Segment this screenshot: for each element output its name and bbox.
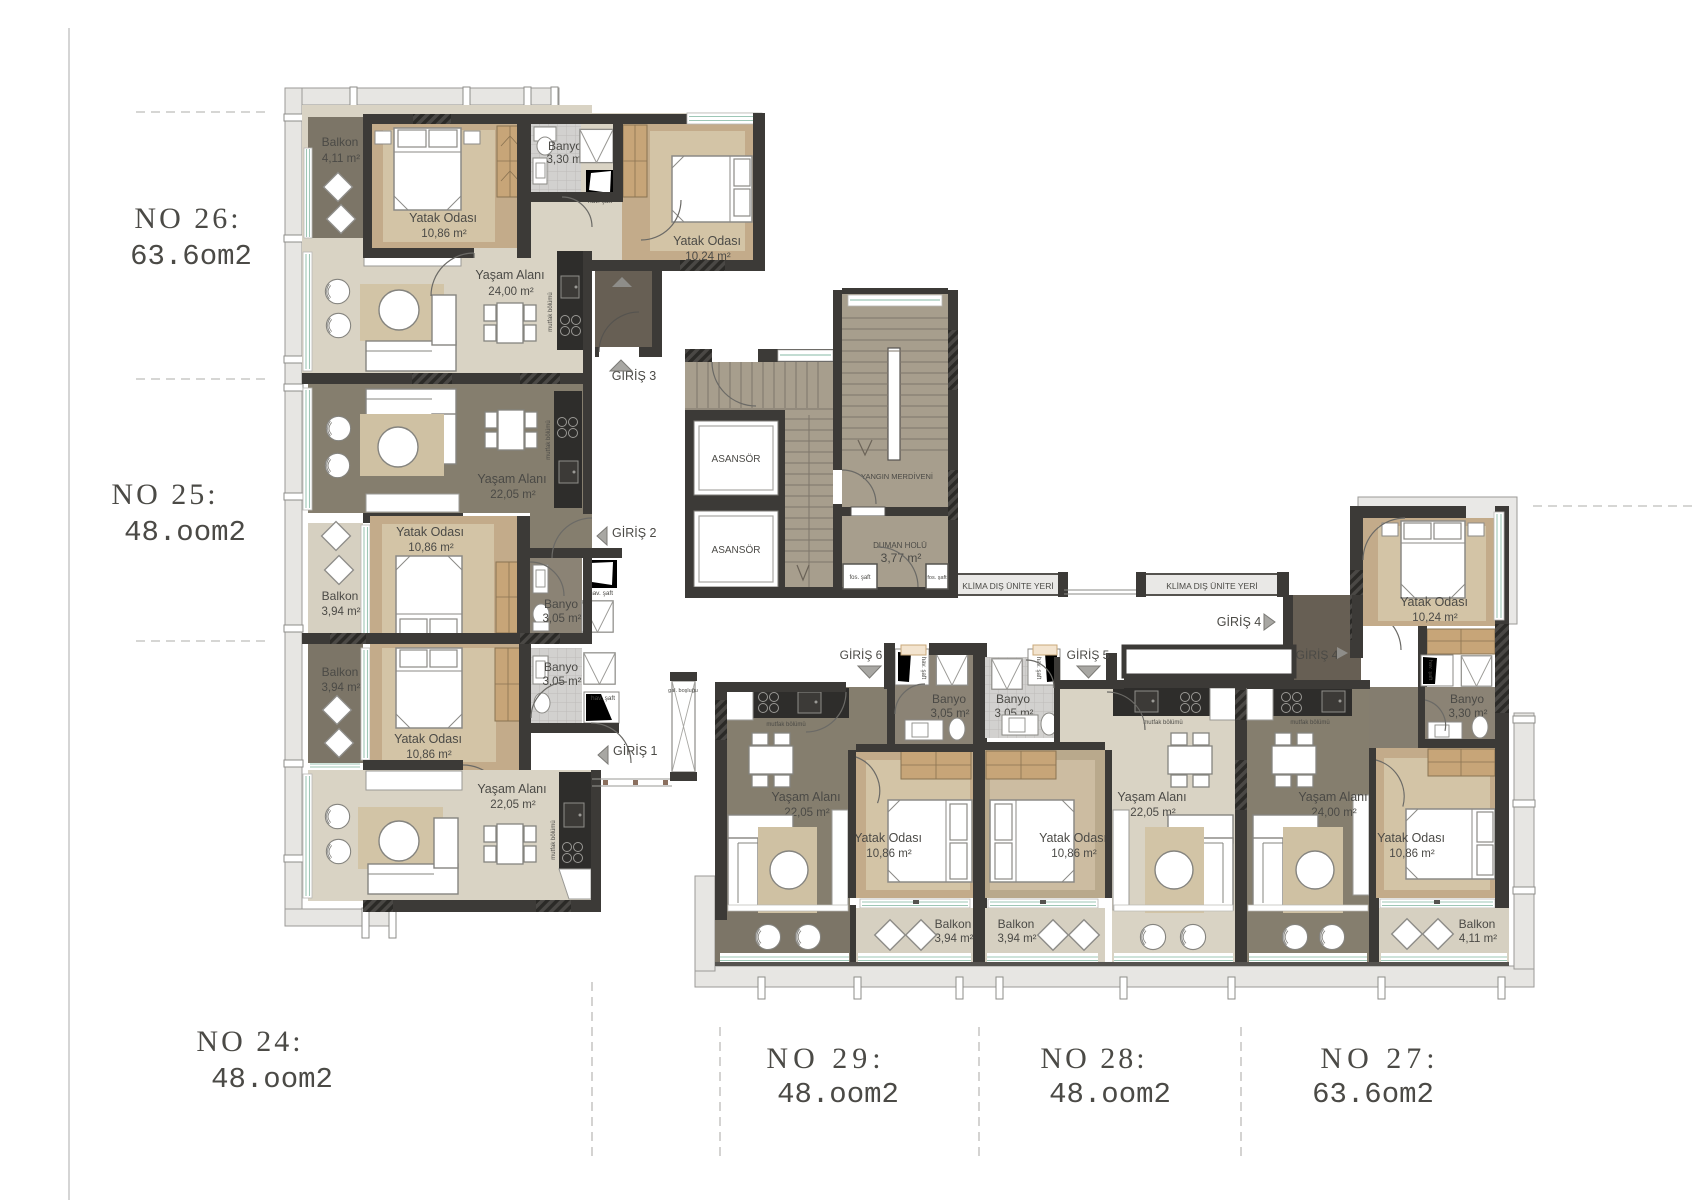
svg-text:Yatak Odası: Yatak Odası	[409, 211, 477, 225]
svg-text:GİRİŞ 4: GİRİŞ 4	[1217, 615, 1262, 629]
svg-text:NO 25:: NO 25:	[111, 478, 218, 511]
svg-text:4,11 m²: 4,11 m²	[1459, 933, 1497, 945]
svg-text:gal. boşluğu: gal. boşluğu	[668, 688, 698, 694]
svg-text:10,86 m²: 10,86 m²	[406, 749, 452, 761]
svg-text:Yatak Odası: Yatak Odası	[854, 831, 922, 845]
svg-text:hav. şaft: hav. şaft	[1035, 657, 1041, 680]
svg-text:GİRİŞ 2: GİRİŞ 2	[612, 526, 657, 540]
svg-text:mutfak bölümü: mutfak bölümü	[1290, 720, 1329, 726]
svg-text:10,86 m²: 10,86 m²	[421, 228, 467, 240]
svg-text:GİRİŞ 1: GİRİŞ 1	[613, 744, 658, 758]
svg-text:hav. şaft: hav. şaft	[920, 657, 926, 680]
svg-text:48.oom2: 48.oom2	[124, 516, 246, 549]
svg-text:Yaşam Alanı: Yaşam Alanı	[477, 782, 546, 796]
svg-text:Balkon: Balkon	[322, 135, 359, 149]
svg-text:NO 26:: NO 26:	[134, 202, 241, 235]
svg-text:Balkon: Balkon	[998, 917, 1035, 931]
svg-text:ASANSÖR: ASANSÖR	[712, 544, 761, 556]
svg-text:Balkon: Balkon	[935, 917, 972, 931]
svg-text:KLİMA DIŞ ÜNİTE YERİ: KLİMA DIŞ ÜNİTE YERİ	[962, 581, 1053, 591]
svg-text:48.oom2: 48.oom2	[1049, 1078, 1171, 1111]
svg-text:22,05 m²: 22,05 m²	[490, 799, 536, 811]
svg-text:GİRİŞ 4: GİRİŞ 4	[1296, 648, 1339, 662]
svg-text:22,05 m²: 22,05 m²	[490, 489, 536, 501]
svg-text:NO 28:: NO 28:	[1040, 1042, 1147, 1075]
svg-text:10,86 m²: 10,86 m²	[1389, 848, 1435, 860]
svg-text:mutfak bölümü: mutfak bölümü	[548, 292, 554, 331]
svg-text:63.6om2: 63.6om2	[1312, 1078, 1434, 1111]
svg-text:Balkon: Balkon	[322, 589, 359, 603]
svg-text:10,86 m²: 10,86 m²	[1051, 848, 1097, 860]
svg-text:3,94 m²: 3,94 m²	[998, 933, 1037, 945]
svg-text:48.oom2: 48.oom2	[211, 1063, 333, 1096]
svg-text:3,77 m²: 3,77 m²	[881, 551, 922, 565]
svg-text:48.oom2: 48.oom2	[777, 1078, 899, 1111]
svg-text:Banyo: Banyo	[996, 692, 1030, 706]
svg-text:KLİMA DIŞ ÜNİTE YERİ: KLİMA DIŞ ÜNİTE YERİ	[1166, 581, 1257, 591]
svg-text:Balkon: Balkon	[1459, 917, 1496, 931]
svg-text:Banyo: Banyo	[544, 597, 578, 611]
svg-text:Yaşam Alanı: Yaşam Alanı	[1298, 790, 1367, 804]
svg-text:Yatak Odası: Yatak Odası	[394, 732, 462, 746]
svg-text:Banyo: Banyo	[932, 692, 966, 706]
svg-text:10,86 m²: 10,86 m²	[408, 542, 454, 554]
svg-text:ASANSÖR: ASANSÖR	[712, 453, 761, 465]
svg-text:NO 29:: NO 29:	[766, 1042, 885, 1075]
svg-text:3,05 m²: 3,05 m²	[931, 708, 970, 720]
svg-text:Yaşam Alanı: Yaşam Alanı	[475, 268, 544, 282]
svg-text:3,05 m²: 3,05 m²	[543, 613, 582, 625]
svg-text:10,24 m²: 10,24 m²	[1412, 612, 1458, 624]
svg-text:Yatak Odası: Yatak Odası	[1039, 831, 1107, 845]
svg-text:Banyo: Banyo	[548, 139, 582, 153]
svg-text:Yatak Odası: Yatak Odası	[396, 525, 464, 539]
svg-text:mutfak bölümü: mutfak bölümü	[766, 722, 805, 728]
svg-text:Yaşam Alanı: Yaşam Alanı	[1117, 790, 1186, 804]
svg-text:NO 24:: NO 24:	[196, 1025, 303, 1058]
svg-text:3,94 m²: 3,94 m²	[322, 606, 361, 618]
svg-text:Yatak Odası: Yatak Odası	[1377, 831, 1445, 845]
svg-text:24,00 m²: 24,00 m²	[488, 286, 534, 298]
svg-text:4,11 m²: 4,11 m²	[322, 153, 360, 165]
svg-text:3,94 m²: 3,94 m²	[935, 933, 974, 945]
svg-text:YANGIN MERDİVENİ: YANGIN MERDİVENİ	[861, 472, 933, 481]
svg-text:3,94 m²: 3,94 m²	[322, 682, 361, 694]
svg-text:mutfak bölümü: mutfak bölümü	[1143, 720, 1182, 726]
svg-text:hav. şaft: hav. şaft	[591, 695, 615, 702]
svg-text:Yatak Odası: Yatak Odası	[673, 234, 741, 248]
svg-text:NO 27:: NO 27:	[1320, 1042, 1439, 1075]
svg-text:GİRİŞ 5: GİRİŞ 5	[1067, 648, 1110, 662]
svg-text:mutfak bölümü: mutfak bölümü	[551, 820, 557, 859]
svg-text:Banyo: Banyo	[544, 660, 578, 674]
svg-text:hav. şaft: hav. şaft	[589, 590, 613, 597]
svg-text:DUMAN HOLÜ: DUMAN HOLÜ	[873, 541, 927, 550]
svg-text:GİRİŞ 6: GİRİŞ 6	[840, 648, 883, 662]
svg-text:Yaşam Alanı: Yaşam Alanı	[477, 472, 546, 486]
svg-text:Balkon: Balkon	[322, 665, 359, 679]
svg-text:fos. şaft: fos. şaft	[927, 575, 947, 581]
svg-text:Banyo: Banyo	[1450, 692, 1484, 706]
svg-text:Yaşam Alanı: Yaşam Alanı	[771, 790, 840, 804]
svg-text:hav. şaft: hav. şaft	[1427, 660, 1433, 681]
svg-text:Yatak Odası: Yatak Odası	[1400, 595, 1468, 609]
svg-text:10,86 m²: 10,86 m²	[866, 848, 912, 860]
svg-text:63.6om2: 63.6om2	[130, 240, 252, 273]
svg-text:fos. şaft: fos. şaft	[849, 575, 870, 581]
svg-text:mutfak bölümü: mutfak bölümü	[546, 420, 552, 459]
